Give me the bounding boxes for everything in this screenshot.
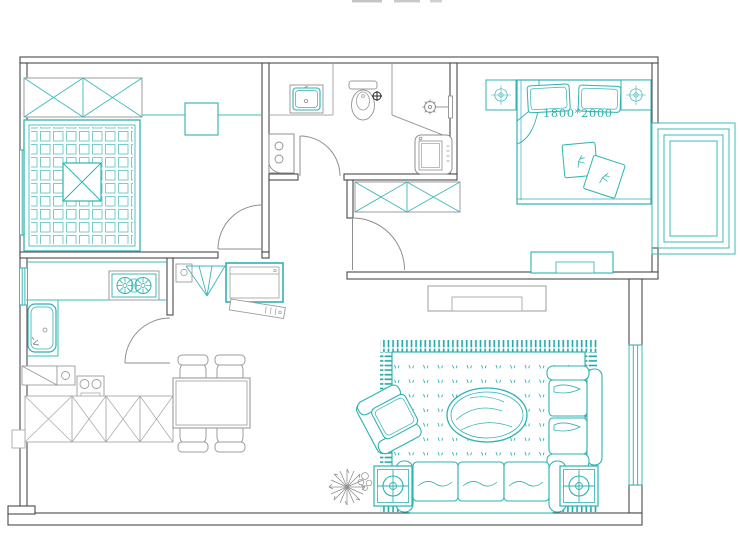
room-tatami-bedroom: [24, 78, 262, 251]
side-table-right: [560, 466, 598, 506]
wall-tatami-bottom: [20, 252, 218, 258]
side-table-left: [374, 466, 412, 506]
entry-hall: [176, 263, 285, 318]
wall-bathroom-bottom-left: [269, 174, 298, 180]
cropped-text-artifact: [352, 0, 442, 2]
wall-living-right-upper: [629, 279, 642, 345]
gas-stove: [109, 271, 159, 300]
oval-coffee-table: [447, 388, 527, 442]
master-bedroom-door: [353, 218, 405, 270]
hall-cabinet: [428, 286, 546, 311]
wall-right-bedroom-upper: [652, 63, 658, 123]
shower-head: [423, 96, 453, 118]
shower-partition: [392, 63, 448, 137]
switch-box: [176, 264, 192, 282]
room-bathroom: [269, 63, 453, 176]
room-living: [329, 340, 602, 513]
window-left-kitchen: [20, 268, 28, 305]
base-cabinets: [12, 396, 173, 448]
wall-right-bedroom-lower: [652, 248, 658, 272]
wall-master-bedroom-left: [347, 180, 353, 218]
bedroom-wardrobe: [355, 182, 460, 212]
three-seat-sofa: [396, 461, 566, 513]
wall-bathroom-bottom-right: [344, 174, 457, 180]
cabinet-end-panel: [12, 430, 25, 448]
washing-machine: [415, 135, 452, 174]
wall-bottom: [8, 513, 642, 525]
kitchen-door: [125, 318, 170, 363]
wall-tatami-right: [262, 63, 269, 252]
kitchen-sink-basin: [28, 304, 56, 352]
dining-table: [173, 378, 250, 428]
low-dresser: [531, 252, 613, 273]
room-dining: [173, 355, 250, 452]
wall-top: [20, 57, 658, 63]
shoe-cabinet: [226, 263, 283, 302]
bathroom-door: [300, 136, 340, 176]
shower-area: [392, 63, 453, 137]
center-lift-table: [63, 163, 101, 201]
bed-size-label: 1800*2000: [543, 106, 613, 120]
wardrobe: [24, 78, 142, 117]
tatami-room-door: [218, 205, 262, 249]
wall-bottom-notch: [8, 506, 35, 514]
floor-plan-canvas: 1800*2000: [0, 0, 740, 555]
bay-window: [652, 123, 735, 254]
tatami-platform: [24, 120, 140, 251]
potted-plant: [329, 469, 365, 505]
room-kitchen: [12, 262, 173, 448]
rug-fringe-top: [380, 340, 597, 352]
toilet: [349, 81, 377, 120]
window-living-right: [629, 345, 642, 485]
wall-living-right-lower: [629, 485, 642, 513]
wash-basin: [290, 85, 323, 113]
wall-corner-piece: [262, 252, 269, 258]
floor-plan-drawing: 1800*2000: [0, 0, 740, 555]
water-heater-cabinet: [269, 134, 294, 173]
side-desk: [185, 103, 218, 135]
wall-kitchen-divider: [167, 258, 173, 315]
